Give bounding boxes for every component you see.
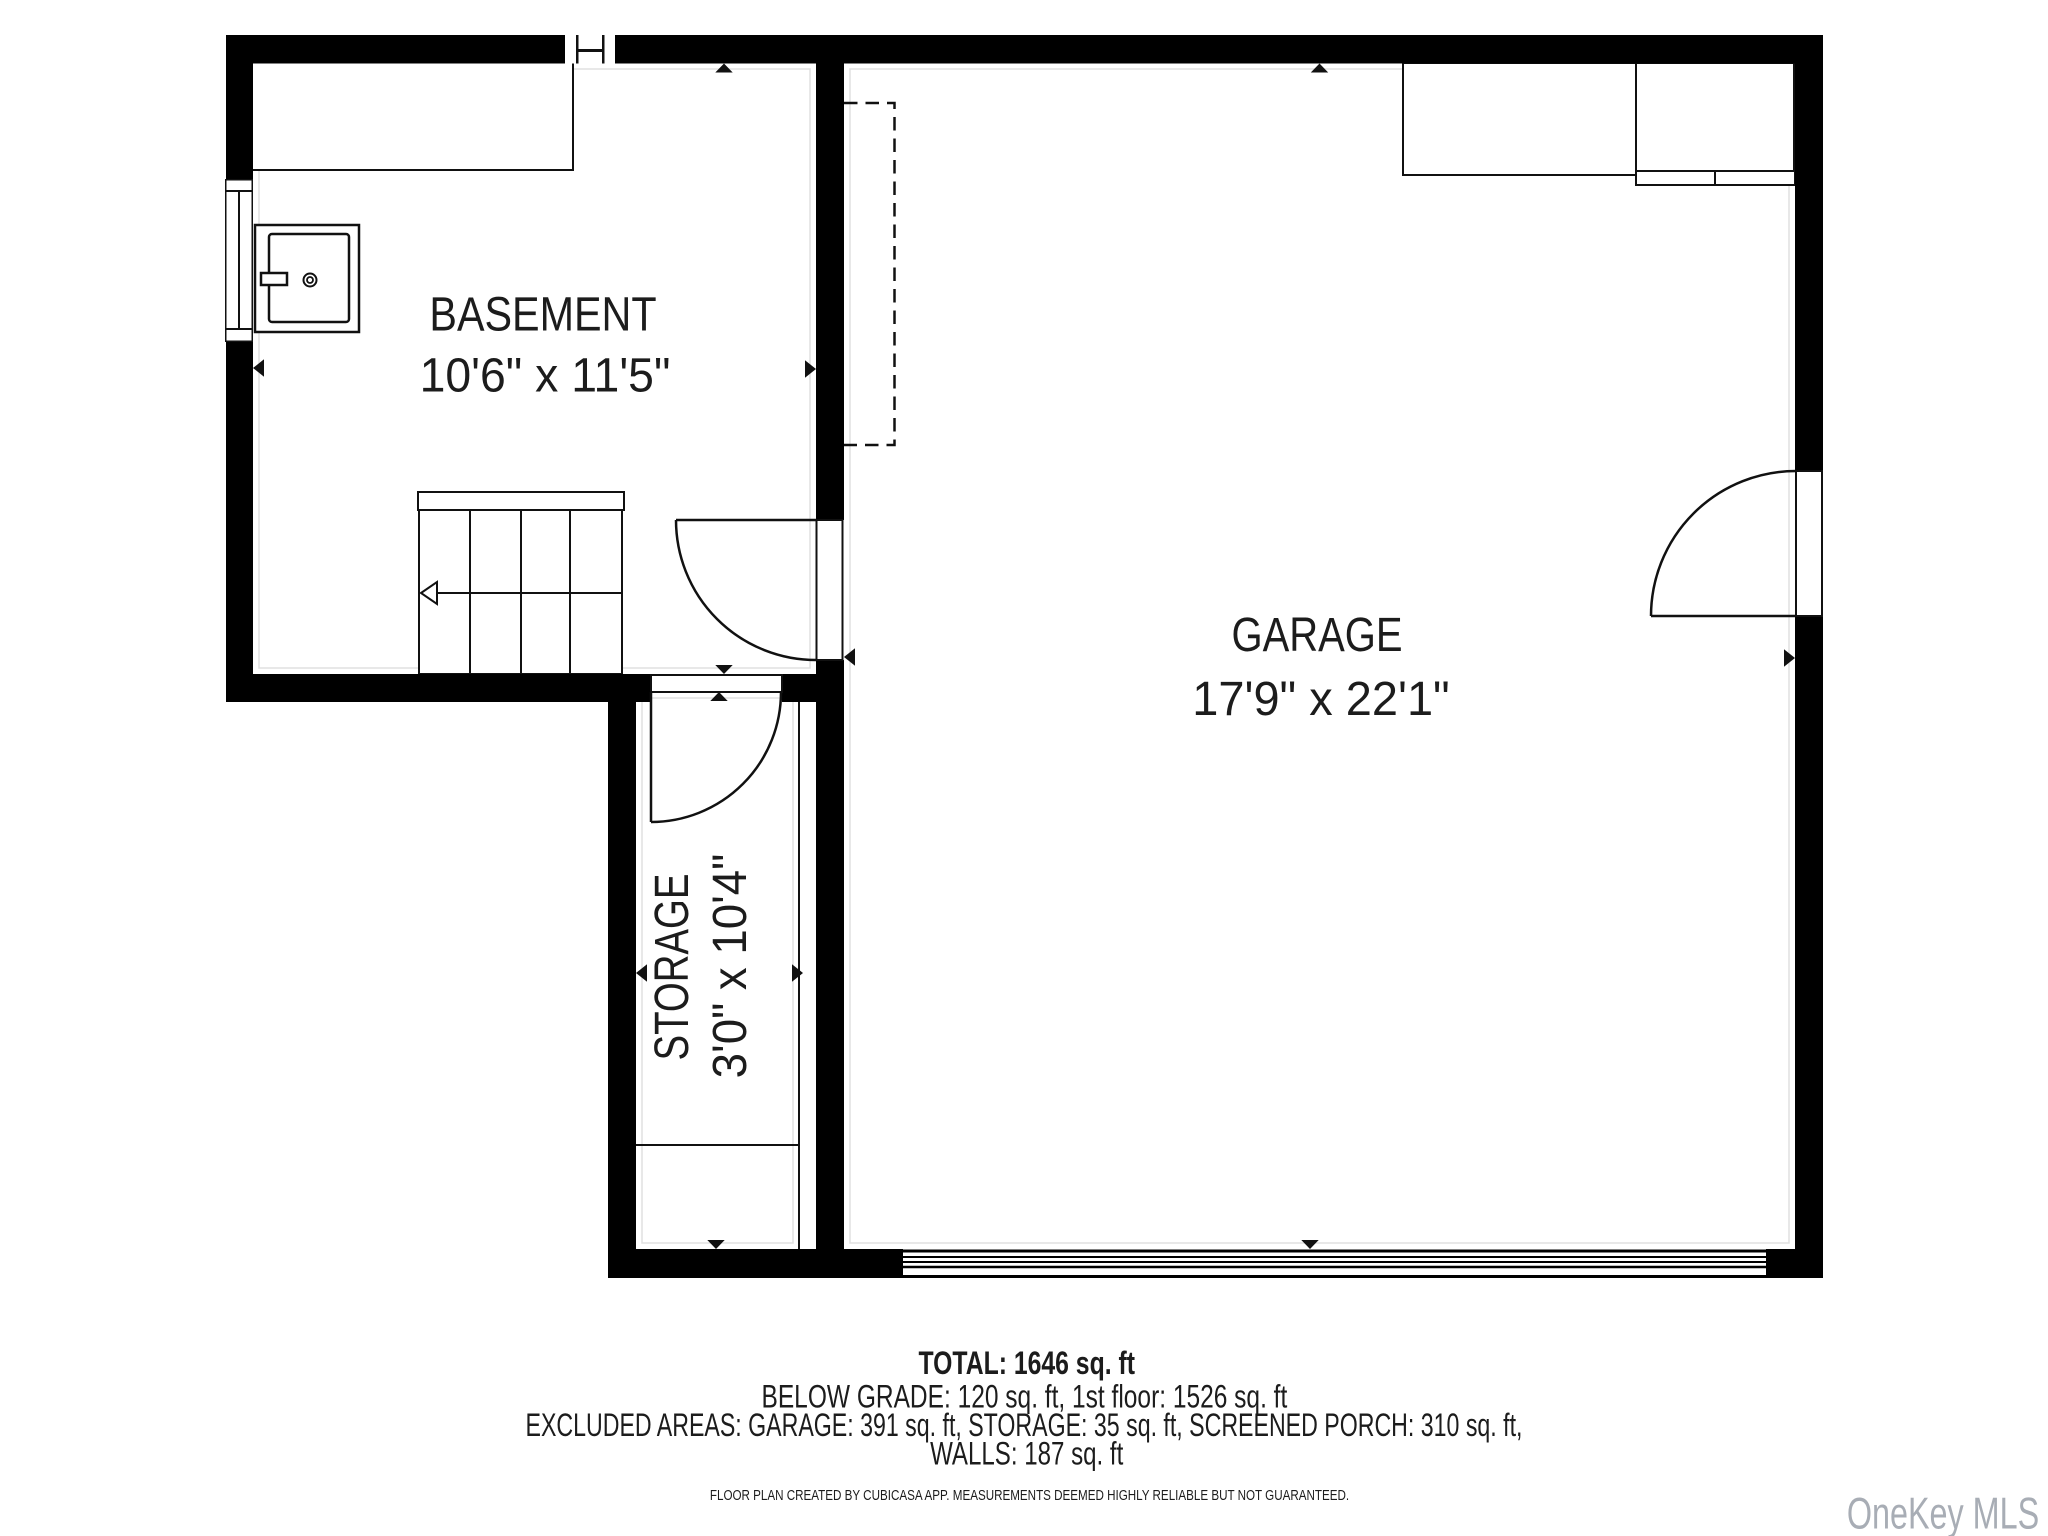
- svg-text:TOTAL: 1646 sq. ft: TOTAL: 1646 sq. ft: [918, 1346, 1135, 1382]
- svg-text:10'6" x 11'5": 10'6" x 11'5": [420, 349, 671, 403]
- svg-text:FLOOR PLAN CREATED BY CUBICASA: FLOOR PLAN CREATED BY CUBICASA APP. MEAS…: [710, 1487, 1349, 1504]
- svg-text:OneKey MLS: OneKey MLS: [1847, 1490, 2039, 1536]
- svg-text:17'9" x 22'1": 17'9" x 22'1": [1192, 673, 1449, 727]
- svg-text:STORAGE: STORAGE: [646, 873, 699, 1060]
- svg-text:3'0" x 10'4": 3'0" x 10'4": [703, 854, 756, 1079]
- svg-text:BASEMENT: BASEMENT: [429, 288, 656, 342]
- svg-text:GARAGE: GARAGE: [1231, 608, 1402, 661]
- svg-text:WALLS: 187 sq. ft: WALLS: 187 sq. ft: [930, 1436, 1123, 1472]
